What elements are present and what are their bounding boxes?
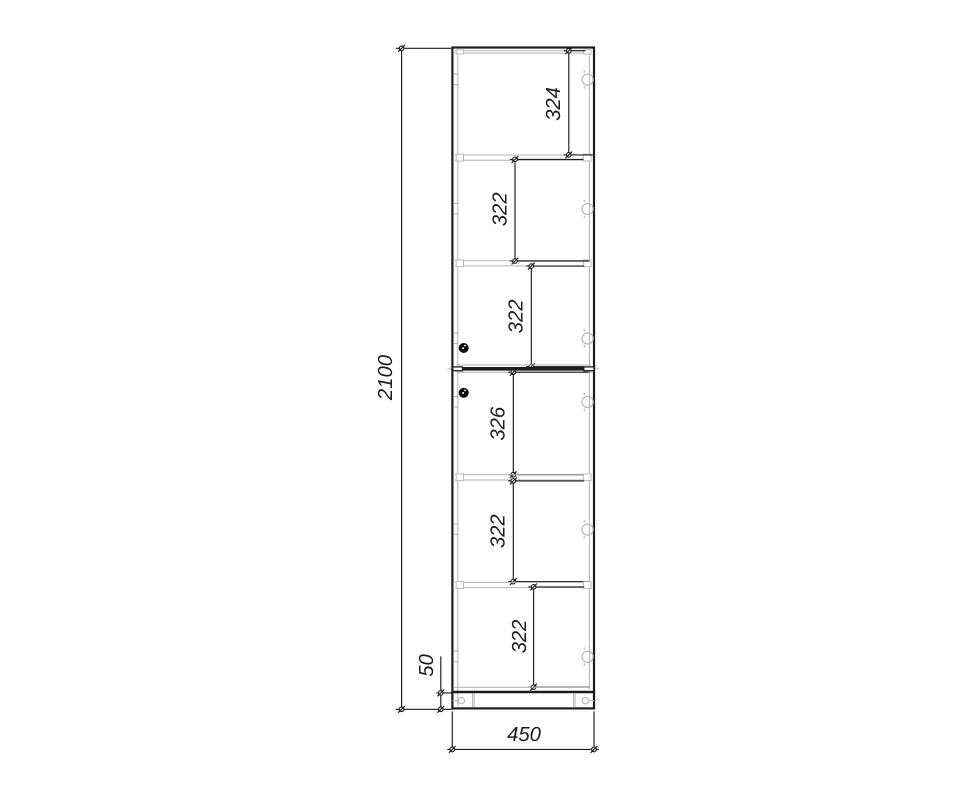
svg-text:450: 450 <box>507 724 542 746</box>
svg-text:326: 326 <box>488 406 510 441</box>
svg-text:2100: 2100 <box>375 354 397 401</box>
svg-text:324: 324 <box>543 87 565 121</box>
svg-text:322: 322 <box>509 620 531 654</box>
svg-text:322: 322 <box>488 514 510 548</box>
svg-text:50: 50 <box>416 654 438 677</box>
svg-text:322: 322 <box>489 192 511 226</box>
svg-text:322: 322 <box>506 299 528 333</box>
